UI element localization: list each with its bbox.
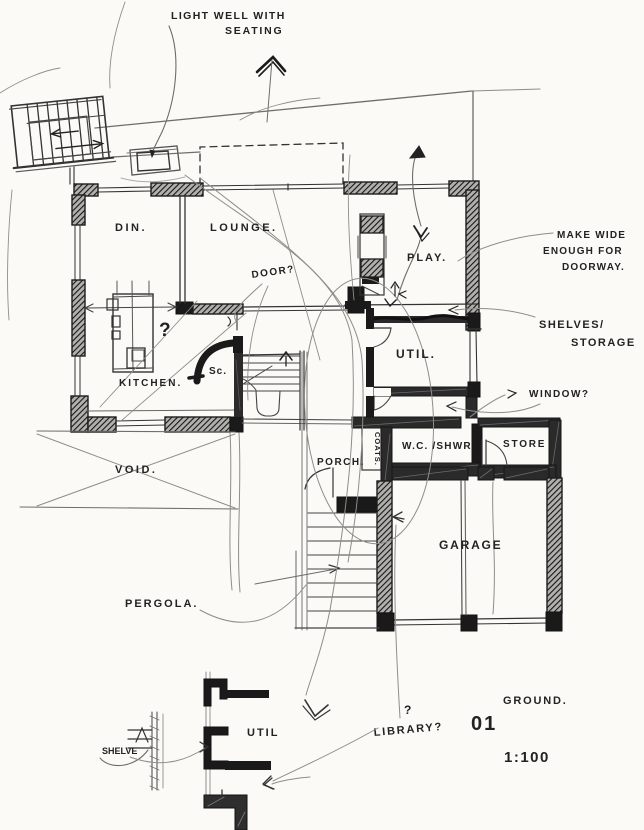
svg-text:?: ? bbox=[159, 320, 171, 341]
svg-text:STORE: STORE bbox=[503, 439, 546, 450]
svg-text:PLAY.: PLAY. bbox=[407, 252, 447, 264]
svg-text:Sc.: Sc. bbox=[209, 366, 227, 377]
svg-text:UTIL.: UTIL. bbox=[396, 347, 436, 361]
svg-text:MAKE WIDE: MAKE WIDE bbox=[557, 230, 626, 241]
svg-text:DOORWAY.: DOORWAY. bbox=[562, 262, 625, 273]
svg-text:SEATING: SEATING bbox=[225, 25, 284, 37]
svg-text:LOUNGE.: LOUNGE. bbox=[210, 222, 278, 234]
svg-text:ENOUGH FOR: ENOUGH FOR bbox=[543, 246, 623, 257]
svg-text:KITCHEN.: KITCHEN. bbox=[119, 378, 182, 389]
svg-text:SHELVES/: SHELVES/ bbox=[539, 319, 605, 331]
svg-text:UTIL: UTIL bbox=[247, 727, 279, 739]
svg-text:STORAGE: STORAGE bbox=[571, 337, 636, 349]
svg-text:DOOR?: DOOR? bbox=[251, 264, 296, 281]
svg-text:VOID.: VOID. bbox=[115, 464, 157, 476]
svg-text:DIN.: DIN. bbox=[115, 222, 147, 234]
svg-text:?: ? bbox=[404, 703, 411, 717]
svg-text:LIBRARY?: LIBRARY? bbox=[373, 721, 443, 739]
svg-text:01: 01 bbox=[471, 713, 497, 735]
svg-text:1:100: 1:100 bbox=[504, 749, 550, 766]
svg-text:GROUND.: GROUND. bbox=[503, 695, 568, 707]
svg-text:GARAGE: GARAGE bbox=[439, 538, 502, 552]
svg-text:WINDOW?: WINDOW? bbox=[529, 389, 590, 400]
svg-text:LIGHT WELL WITH: LIGHT WELL WITH bbox=[171, 10, 286, 22]
svg-text:W.C. /SHWR.: W.C. /SHWR. bbox=[402, 441, 476, 452]
svg-text:PERGOLA.: PERGOLA. bbox=[125, 598, 198, 610]
svg-text:SHELVE: SHELVE bbox=[102, 746, 137, 756]
svg-text:PORCH.: PORCH. bbox=[317, 457, 365, 468]
